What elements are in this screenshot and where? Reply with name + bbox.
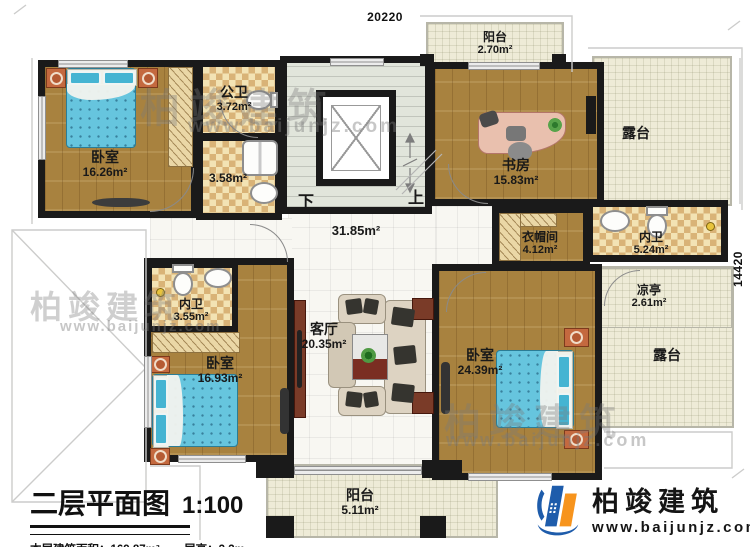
label-hall-area: 31.85m²	[318, 224, 394, 239]
tv-console	[92, 198, 150, 207]
floor-plan: 卧室 16.26m² 公卫 3.72m² 3.58m² 31.85m² 书房 1…	[0, 0, 750, 547]
label-bedroom-bl: 卧室 16.93m²	[178, 356, 262, 385]
title-block: 二层平面图 1:100 本层建筑面积：169.87m² 层高：3.3m	[30, 482, 245, 547]
balcony-post	[266, 516, 294, 538]
sink-icon	[204, 268, 232, 288]
window	[58, 60, 128, 68]
label-bath-right: 内卫 5.24m²	[616, 231, 686, 257]
label-terrace-top: 露台	[602, 126, 670, 142]
window	[178, 455, 246, 463]
watermark-url: www.baijunjz.com	[446, 430, 649, 451]
label-terrace-right: 露台	[634, 348, 700, 364]
plan-title: 二层平面图	[30, 482, 170, 522]
logo-building-icon	[528, 480, 586, 538]
nightstand	[564, 328, 589, 347]
side-table	[412, 392, 434, 414]
logo-brand-text: 柏竣建筑	[592, 480, 750, 519]
title-underline	[30, 525, 190, 535]
label-balcony-top: 阳台 2.70m²	[456, 31, 534, 57]
nightstand	[150, 356, 170, 373]
window	[144, 356, 152, 428]
label-cloakroom: 衣帽间 4.12m²	[504, 231, 576, 257]
stairs-up-label: 上	[402, 190, 430, 208]
logo: 柏竣建筑 www.baijunjz.com	[528, 480, 750, 538]
wardrobe	[152, 332, 240, 353]
label-bath-left: 内卫 3.55m²	[160, 298, 222, 324]
wall-segment	[256, 460, 294, 478]
nightstand	[150, 448, 170, 465]
nightstand	[46, 68, 66, 88]
label-public-bath: 公卫 3.72m²	[198, 85, 270, 113]
bed-top-left	[66, 68, 136, 148]
door-knob-icon	[706, 222, 715, 231]
wall-segment	[586, 96, 596, 134]
monitor-icon	[506, 126, 526, 141]
sink-icon	[600, 210, 630, 232]
wall-segment	[552, 54, 566, 66]
side-table	[412, 298, 434, 320]
label-living: 客厅 20.35m²	[284, 322, 364, 351]
vestibule-floor	[436, 206, 496, 270]
window	[38, 96, 46, 160]
dimension-right: 14420	[731, 237, 745, 301]
label-pavilion: 凉亭 2.61m²	[614, 284, 684, 310]
label-bedroom-tl: 卧室 16.26m²	[55, 150, 155, 179]
elevator-car	[331, 105, 381, 171]
label-bedroom-br: 卧室 24.39m²	[438, 348, 522, 377]
tv-icon	[280, 388, 289, 434]
label-study: 书房 15.83m²	[470, 158, 562, 187]
plant-icon	[548, 118, 562, 132]
label-balcony-bottom: 阳台 5.11m²	[318, 488, 402, 517]
window	[468, 62, 540, 70]
balcony-post	[420, 516, 446, 538]
label-shower-room: 3.58m²	[196, 172, 260, 185]
plan-stats: 本层建筑面积：169.87m² 层高：3.3m	[30, 541, 245, 547]
shower-icon	[242, 140, 278, 176]
logo-url-text: www.baijunjz.com	[592, 519, 750, 536]
stairs-down-label: 下	[292, 194, 320, 212]
wall-segment	[420, 54, 434, 66]
balcony-sliding-door	[294, 466, 422, 475]
plan-scale: 1:100	[182, 492, 243, 520]
watermark-url: www.baijunjz.com	[188, 116, 400, 138]
wall-segment	[422, 460, 462, 478]
window	[330, 58, 384, 66]
dimension-top: 20220	[340, 10, 430, 24]
